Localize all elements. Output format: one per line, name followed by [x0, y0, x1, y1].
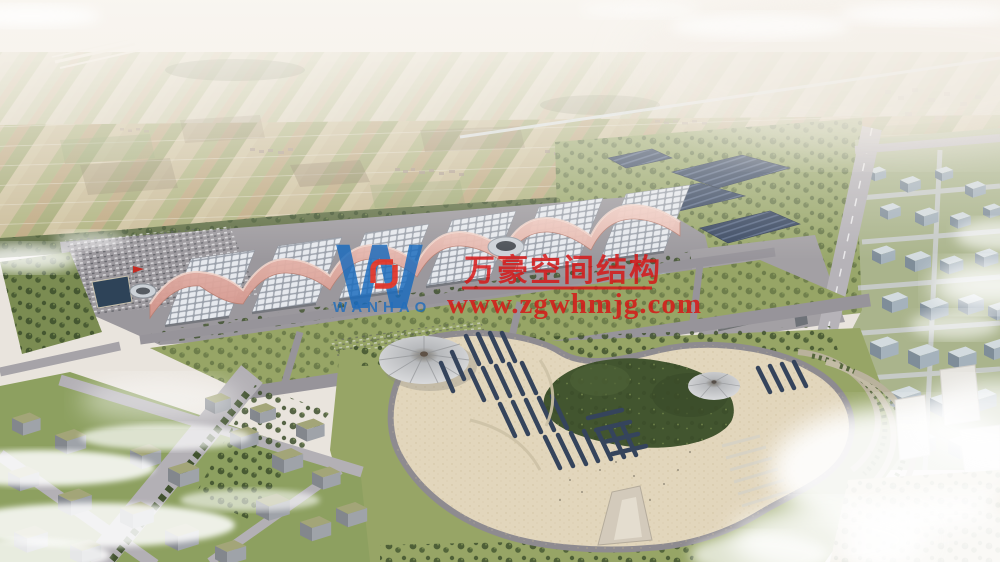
pond: [92, 276, 132, 308]
cloud-mid-left: [80, 376, 240, 424]
round-pavilion-left-roof: [136, 288, 150, 295]
scene-canvas: W WANHAO 万豪空间结构 www.zgwhmjg.com: [0, 0, 1000, 562]
aerial-rendering: W WANHAO 万豪空间结构 www.zgwhmjg.com: [0, 0, 1000, 562]
cloud-right-mid-3: [910, 311, 1000, 339]
left-road: [0, 346, 120, 372]
cloud-bottom-left-4: [180, 489, 320, 511]
watermark-website: www.zgwhmjg.com: [447, 288, 702, 320]
cloud-left-mid-2: [55, 231, 125, 249]
cloud-top-mid: [580, 2, 700, 18]
cloud-bottom-left-2: [80, 424, 250, 450]
small-cone-tent: [688, 372, 740, 400]
cloud-top-right-1: [670, 13, 850, 39]
watermark-company-name: 万豪空间结构: [464, 253, 662, 288]
watermark-logo-name: WANHAO: [333, 299, 431, 316]
